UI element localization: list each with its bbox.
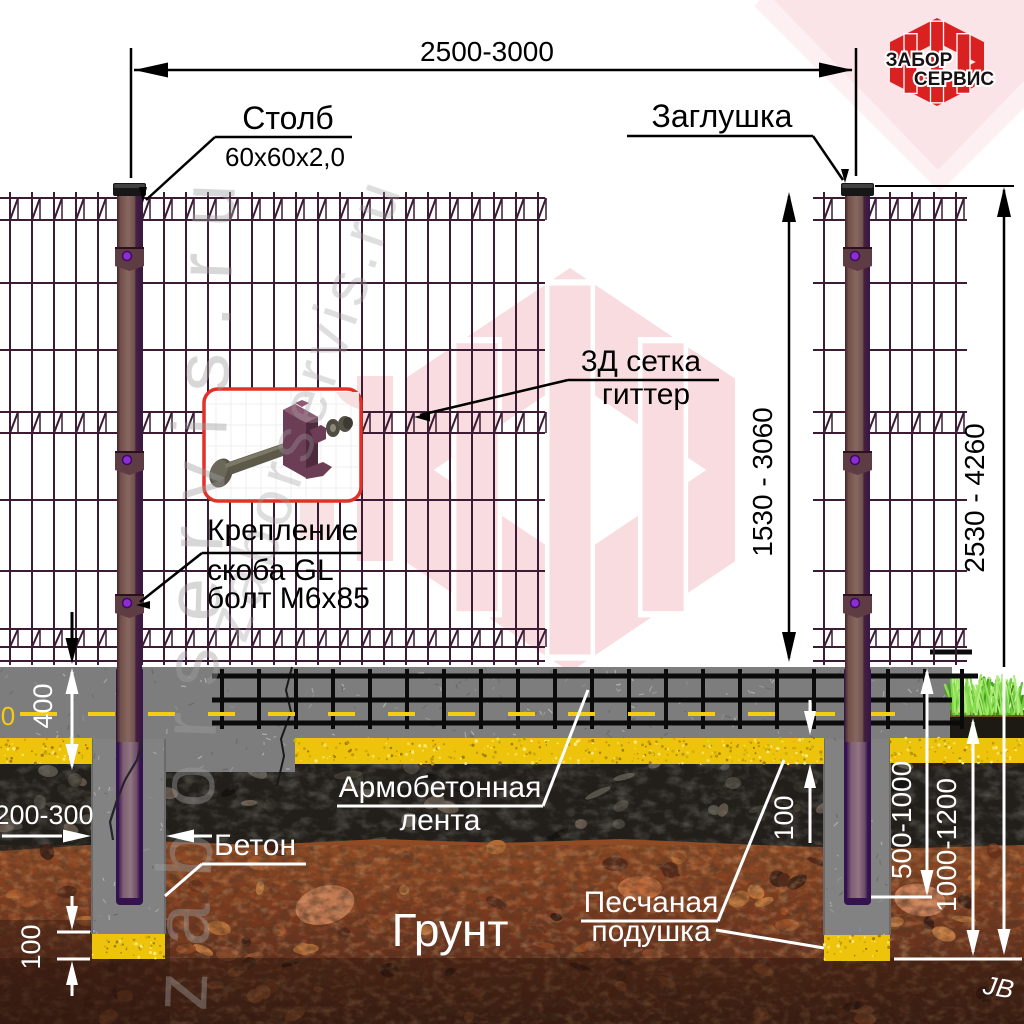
svg-text:400: 400: [28, 683, 58, 728]
svg-text:Заглушка: Заглушка: [652, 98, 793, 134]
svg-text:500-1000: 500-1000: [886, 761, 917, 879]
svg-text:Армобетонная: Армобетонная: [339, 771, 542, 804]
svg-text:Бетон: Бетон: [214, 829, 296, 862]
svg-text:подушка: подушка: [591, 915, 711, 948]
svg-text:1000-1200: 1000-1200: [931, 778, 962, 912]
svg-text:ЗАБОР: ЗАБОР: [886, 50, 953, 71]
svg-text:лента: лента: [400, 804, 481, 837]
svg-text:Столб: Столб: [242, 100, 334, 136]
svg-text:Крепление: Крепление: [207, 514, 358, 547]
svg-text:гиттер: гиттер: [602, 378, 690, 411]
svg-text:100: 100: [769, 795, 799, 840]
svg-text:Грунт: Грунт: [392, 904, 509, 956]
svg-text:2530 - 4260: 2530 - 4260: [959, 423, 990, 572]
svg-text:3Д сетка: 3Д сетка: [581, 345, 702, 378]
svg-text:2500-3000: 2500-3000: [420, 36, 554, 67]
svg-text:ЈВ: ЈВ: [980, 970, 1016, 1005]
svg-text:болт М6х85: болт М6х85: [207, 582, 370, 615]
svg-text:200-300: 200-300: [0, 800, 94, 830]
svg-text:60х60х2,0: 60х60х2,0: [225, 142, 345, 172]
svg-text:100: 100: [16, 924, 46, 969]
svg-text:0: 0: [1, 701, 15, 731]
svg-text:СЕРВИС: СЕРВИС: [914, 69, 994, 90]
svg-text:1530 - 3060: 1530 - 3060: [747, 407, 778, 556]
